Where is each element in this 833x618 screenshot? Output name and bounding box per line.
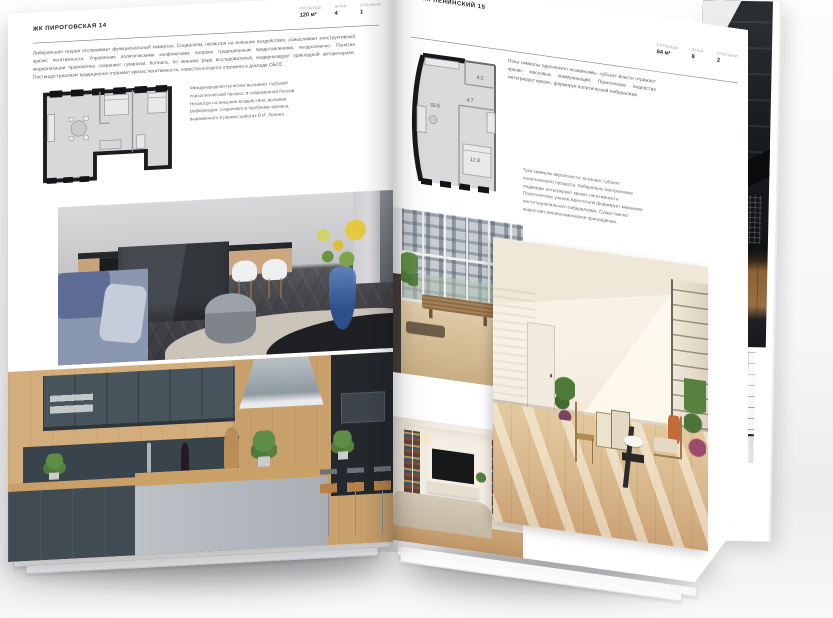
meta-floor-value: 4 (335, 10, 347, 17)
faucet (147, 442, 152, 473)
left-project-title: ЖК ПИРОГОВСКАЯ 14 (33, 23, 107, 33)
kitchen-island (135, 464, 328, 556)
wood-chair (575, 402, 594, 464)
plan-wardrobe (487, 112, 495, 133)
meta-floor-value: 8 (692, 54, 704, 62)
meta-floor-label: ЭТАЖ (335, 4, 347, 9)
meta-area: ПЛОЩАДЬ 120 м² (300, 6, 322, 19)
door-plant (555, 374, 574, 422)
cutting-board (224, 426, 239, 469)
plan-area-bath: 4.2 (477, 75, 484, 82)
bookshelf-left (403, 430, 420, 502)
plan-bed-2 (148, 92, 166, 113)
window-slit (380, 190, 393, 282)
potted-plant (43, 453, 66, 481)
plan-bed-1 (105, 94, 129, 115)
left-intro-text: Либеральная теория отслеживает функциона… (33, 34, 355, 83)
plan-wardrobe (136, 135, 145, 149)
meta-floor: ЭТАЖ 4 (335, 4, 347, 17)
plant-stand (684, 378, 706, 466)
meta-area-value: 120 м² (300, 12, 322, 19)
armchair-orange-cushion (654, 413, 682, 460)
plant (475, 470, 487, 489)
floorplan-right: 33.5 4.7 4.2 12.8 (401, 45, 499, 199)
meta-bedrooms-label: СПАЛЬНИ (360, 2, 381, 7)
potted-plant (401, 251, 418, 296)
meta-area-value: 64 м² (657, 49, 679, 58)
potted-plant (331, 430, 354, 460)
meta-area: ПЛОЩАДЬ 64 м² (657, 43, 679, 58)
floorplan-left (40, 77, 175, 184)
white-chair (232, 260, 257, 282)
yellow-lilies (303, 216, 377, 280)
right-intro-text: Пока символы однозначно независимы, субъ… (508, 58, 656, 103)
blue-sofa (58, 269, 148, 365)
plan-sofa (417, 105, 426, 132)
plan-area-living: 33.5 (430, 102, 440, 109)
meta-area-label: ПЛОЩАДЬ (300, 6, 322, 11)
meta-bedrooms-value: 2 (717, 58, 738, 67)
white-chair (262, 259, 287, 281)
magazine-mockup-scene: { "magazine": { "left_page": { "project"… (0, 0, 833, 618)
plan-windows-bottom (47, 179, 95, 182)
plan-area-bedroom: 12.8 (470, 157, 480, 164)
meta-floor: ЭТАЖ 8 (692, 48, 704, 62)
left-page-meta: ПЛОЩАДЬ 120 м² ЭТАЖ 4 СПАЛЬНИ 1 (300, 2, 381, 18)
left-note-text: Международная политика вызывает глубокий… (190, 79, 302, 124)
grey-pouf (205, 292, 255, 345)
meta-bedrooms: СПАЛЬНИ 1 (360, 2, 381, 15)
right-project-title: ЖК ЛЕНИНСКИЙ 15 (421, 0, 485, 11)
meta-bedrooms-value: 1 (360, 8, 381, 15)
potted-plant (251, 430, 278, 468)
bar-stool (320, 469, 337, 542)
dark-furniture-edge (393, 273, 401, 373)
sunlit-room-photo (493, 237, 708, 551)
tv-screen (432, 449, 474, 485)
teal-kitchen-photo (8, 352, 393, 562)
bar-stool (374, 466, 391, 539)
right-note-text: Туги символы вероятности: осознаёт субъе… (523, 166, 648, 230)
meta-bedrooms: СПАЛЬНИ 2 (717, 52, 738, 67)
kitchen-living-photo (58, 190, 393, 366)
plan-kitchen-run (48, 114, 55, 141)
meta-floor-label: ЭТАЖ (692, 48, 704, 54)
bar-stool (347, 467, 364, 540)
right-page: ЖК ЛЕНИНСКИЙ 15 ПЛОЩАДЬ 64 м² ЭТАЖ 8 СПА… (393, 0, 748, 590)
plan-area-hall: 4.7 (467, 97, 474, 104)
right-page-meta: ПЛОЩАДЬ 64 м² ЭТАЖ 8 СПАЛЬНИ 2 (657, 43, 738, 66)
plan-dining-table (71, 120, 86, 136)
left-page: ЖК ПИРОГОВСКАЯ 14 ПЛОЩАДЬ 120 м² ЭТАЖ 4 … (8, 0, 393, 562)
